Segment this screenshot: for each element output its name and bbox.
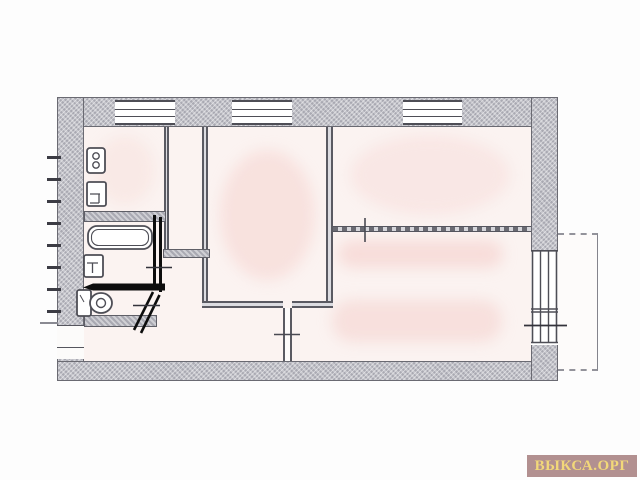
site-watermark-text: ВЫКСА.ОРГ: [535, 458, 630, 475]
scanned-floor-plan-page: { "watermark": { "text": "ВЫКСА.ОРГ", "b…: [0, 0, 640, 480]
gas-stove-icon: [87, 148, 105, 173]
site-watermark: ВЫКСА.ОРГ: [527, 455, 637, 477]
new-partition-vertical: [155, 215, 161, 292]
new-partition-horizontal: [83, 284, 165, 291]
plan-detail-overlay: [0, 0, 640, 480]
door-swing-marks: [134, 292, 160, 333]
bathtub-icon: [88, 226, 152, 249]
kitchen-sink-icon: [87, 182, 106, 206]
toilet-icon: [77, 290, 112, 316]
balcony-window-frame: [524, 250, 567, 343]
wash-basin-icon: [84, 255, 103, 277]
